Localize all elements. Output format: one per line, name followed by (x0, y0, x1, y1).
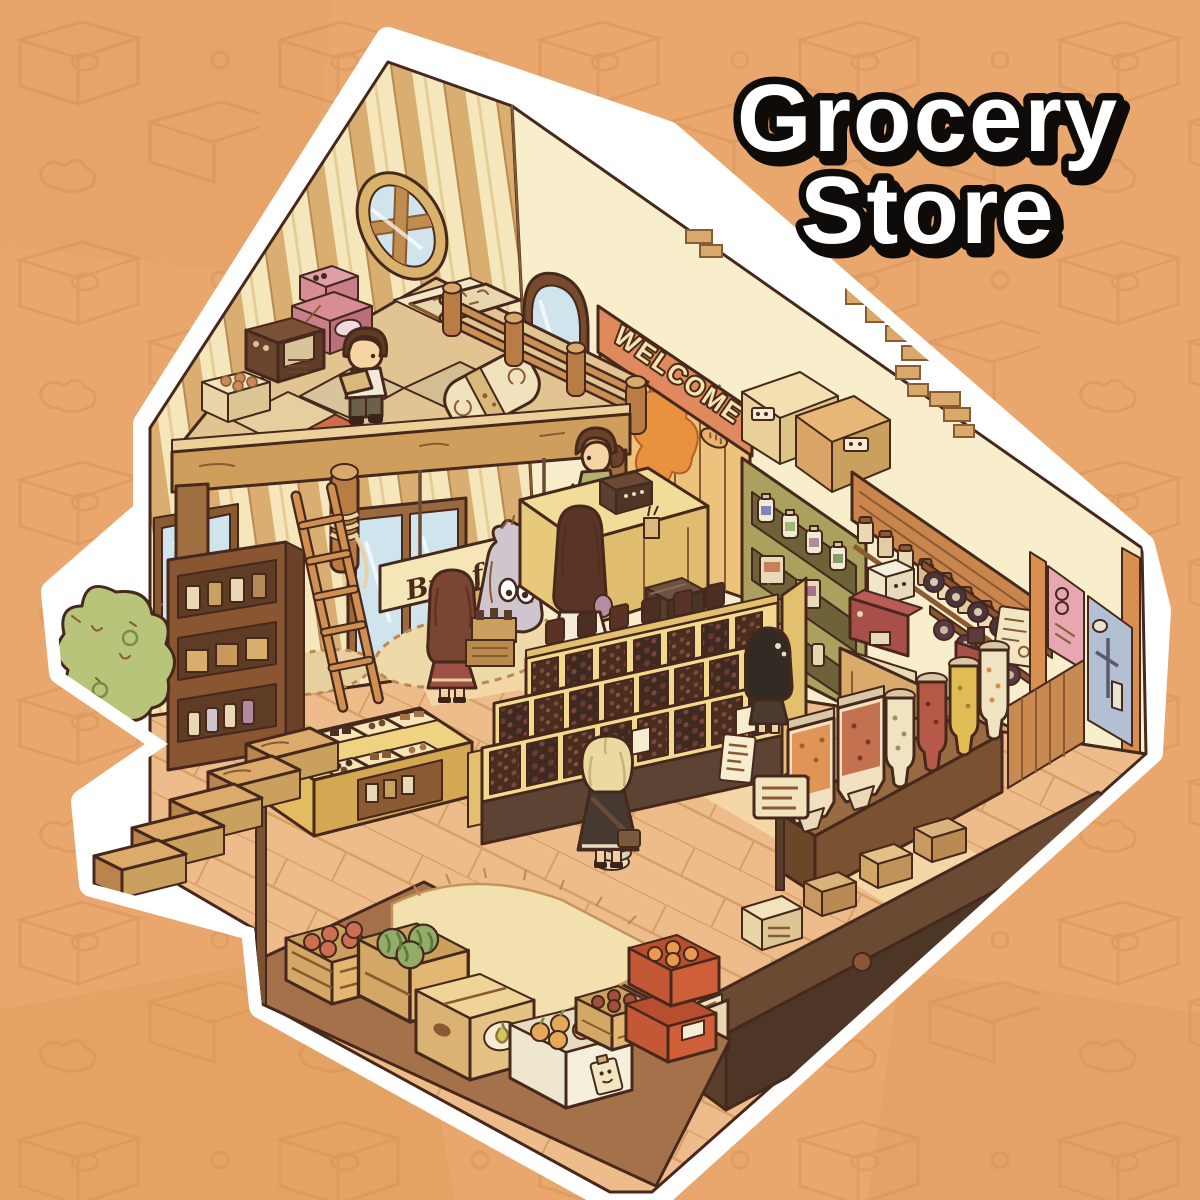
fruit-on-floor (853, 953, 871, 971)
illustration-stage: WELCOME (0, 0, 1200, 1200)
title-line1: Grocery (737, 65, 1119, 172)
title-line2: Store (800, 157, 1055, 264)
shopper-dark-hair-character (746, 628, 792, 733)
grocery-store-illustration: WELCOME (0, 0, 1200, 1200)
big-dispenser (838, 686, 884, 810)
girl-character-entrance (428, 570, 478, 703)
price-card (719, 734, 756, 783)
